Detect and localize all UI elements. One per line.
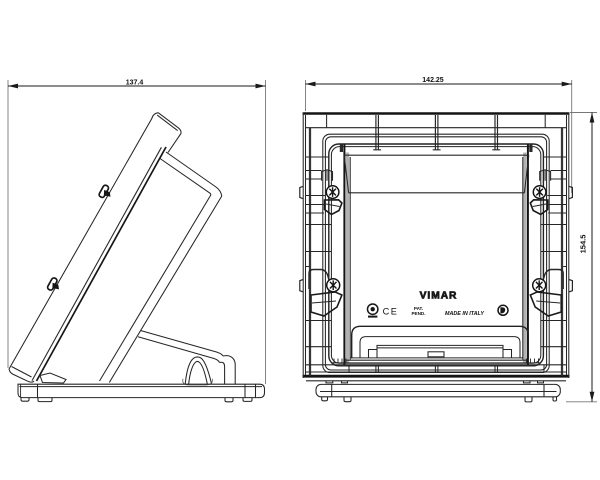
svg-text:154.5: 154.5 [579, 235, 588, 254]
svg-text:137.4: 137.4 [126, 80, 144, 87]
svg-text:142.25: 142.25 [422, 77, 444, 84]
svg-text:VIMAR: VIMAR [420, 291, 458, 302]
svg-text:CE: CE [383, 307, 399, 317]
svg-text:PEND.: PEND. [411, 311, 425, 316]
svg-text:MADE IN ITALY: MADE IN ITALY [445, 311, 484, 317]
